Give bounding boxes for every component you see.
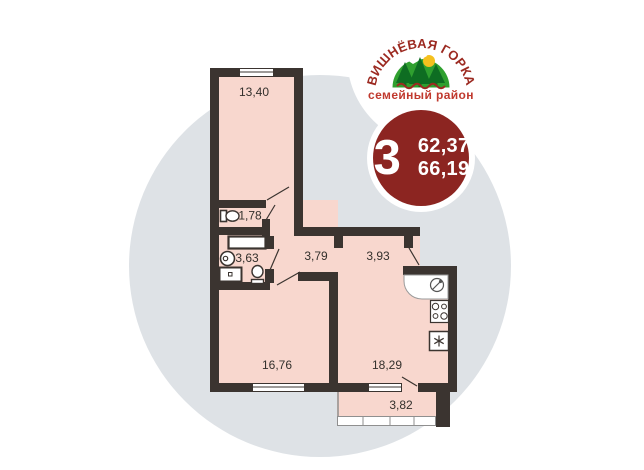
floor-plan: 13,40 1,78 3,63 3,79 3,93 16,76 18,29 3,… bbox=[0, 0, 644, 470]
wall-balcony-right bbox=[436, 392, 450, 427]
fridge-icon bbox=[430, 332, 449, 351]
wall-left bbox=[210, 68, 219, 392]
floor-plan-flyer: 3 62,37 66,19 ВИШНЁВАЯ Г bbox=[0, 0, 644, 470]
bathroom-sink-icon bbox=[220, 268, 242, 282]
wall-bottom-2 bbox=[305, 383, 368, 392]
room-label-bedroom: 13,40 bbox=[239, 85, 269, 99]
wall-bottom-1 bbox=[210, 383, 252, 392]
wall-hall-top bbox=[294, 227, 420, 236]
balcony-fill bbox=[337, 392, 436, 416]
window-kitchen bbox=[369, 384, 402, 392]
wall-bedroom-bottom bbox=[219, 200, 266, 208]
toilet-icon-bathroom bbox=[252, 266, 264, 284]
wall-bedroom-right bbox=[294, 68, 303, 236]
washing-machine-icon bbox=[221, 252, 235, 266]
room-label-hallway-2: 3,93 bbox=[366, 249, 390, 263]
wall-kitchen-right bbox=[448, 266, 457, 392]
room-label-kitchen-living: 18,29 bbox=[372, 358, 402, 372]
room-label-living-room: 16,76 bbox=[262, 358, 292, 372]
wall-stub-entrance bbox=[404, 236, 413, 248]
wall-bath-right-lower bbox=[265, 269, 274, 283]
wall-bottom-3 bbox=[418, 383, 457, 392]
room-label-wc: 1,78 bbox=[238, 209, 262, 223]
room-label-balcony: 3,82 bbox=[389, 398, 413, 412]
window-bedroom bbox=[240, 69, 274, 77]
room-label-hallway-1: 3,79 bbox=[304, 249, 328, 263]
wall-stub-hall bbox=[334, 236, 343, 248]
stove-icon bbox=[431, 301, 449, 323]
toilet-icon-wc bbox=[221, 211, 240, 222]
wall-middle bbox=[329, 272, 338, 383]
wall-wc-bottom bbox=[219, 227, 268, 235]
room-label-bathroom: 3,63 bbox=[235, 251, 259, 265]
window-living-room bbox=[253, 384, 305, 392]
bathtub-icon bbox=[229, 237, 266, 249]
kitchen-sink-icon bbox=[431, 279, 444, 292]
